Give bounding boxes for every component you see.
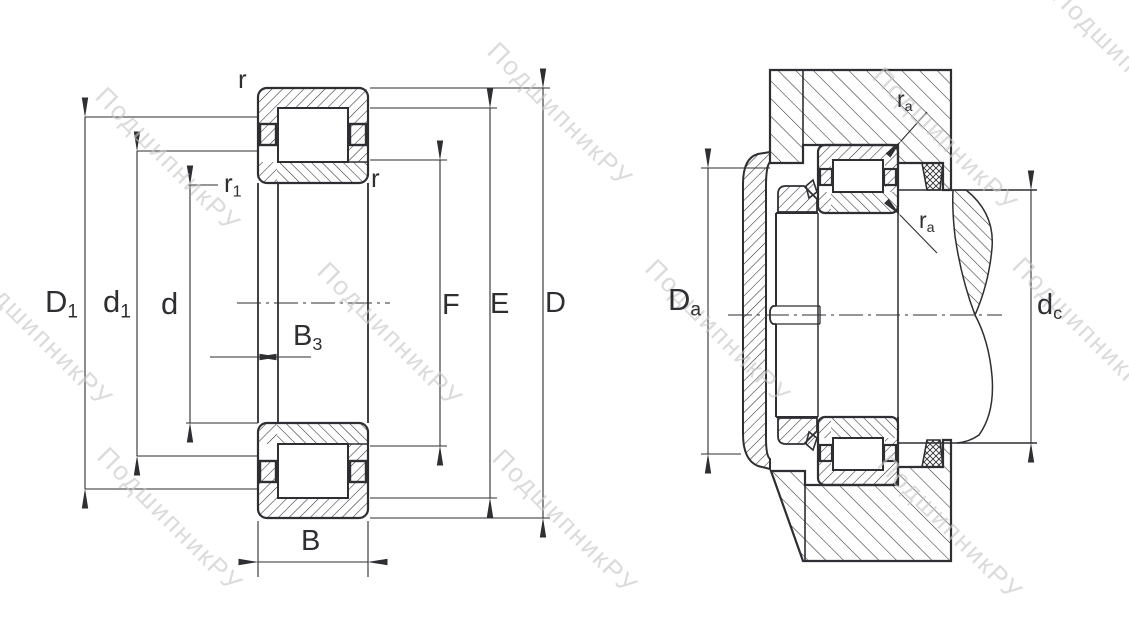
inner-ring-hatch [277,162,367,182]
bearing-section-bottom [258,423,368,518]
slinger-bottom [806,432,817,450]
seal-top [922,163,943,190]
dim-label-r-inner: r [371,165,380,195]
bearing-section-top [258,88,368,183]
seal-bottom [922,440,943,467]
dim-label-r1: r1 [224,170,242,200]
dim-label-B3: B3 [293,322,322,353]
dim-label-ra-top: ra [897,88,913,114]
dim-label-d1: d1 [103,286,131,322]
slinger-top [806,180,817,198]
dim-label-D: D [545,289,566,320]
dim-label-D1: D1 [45,286,78,322]
dim-label-r-outer: r [238,66,247,96]
cage-left-top [260,124,276,145]
shaft-broken-section [953,190,993,315]
cage-right-bottom [350,461,366,482]
bearing-diagram-page: ПодшипникРУ ПодшипникРУ ПодшипникРУ Подш… [0,0,1129,632]
shaft-break-curve [957,315,992,443]
right-view [701,70,1037,561]
dim-label-E: E [490,290,509,321]
shaft [770,190,1037,443]
dim-label-F: F [442,291,460,322]
dim-label-B: B [301,527,320,558]
mounted-bearing-top [818,145,898,213]
dim-label-d: d [161,288,178,324]
mounted-bearing-bottom [818,417,898,485]
roller-bottom [278,444,348,498]
inner-ring-hatch [277,424,367,444]
dim-label-Da: Da [668,284,701,320]
dim-label-ra-bottom: ra [919,209,935,235]
end-cover [743,152,770,469]
roller-top [278,108,348,162]
dim-label-dc: dc [1037,291,1062,322]
cage-right-top [350,124,366,145]
cage-left-bottom [260,461,276,482]
